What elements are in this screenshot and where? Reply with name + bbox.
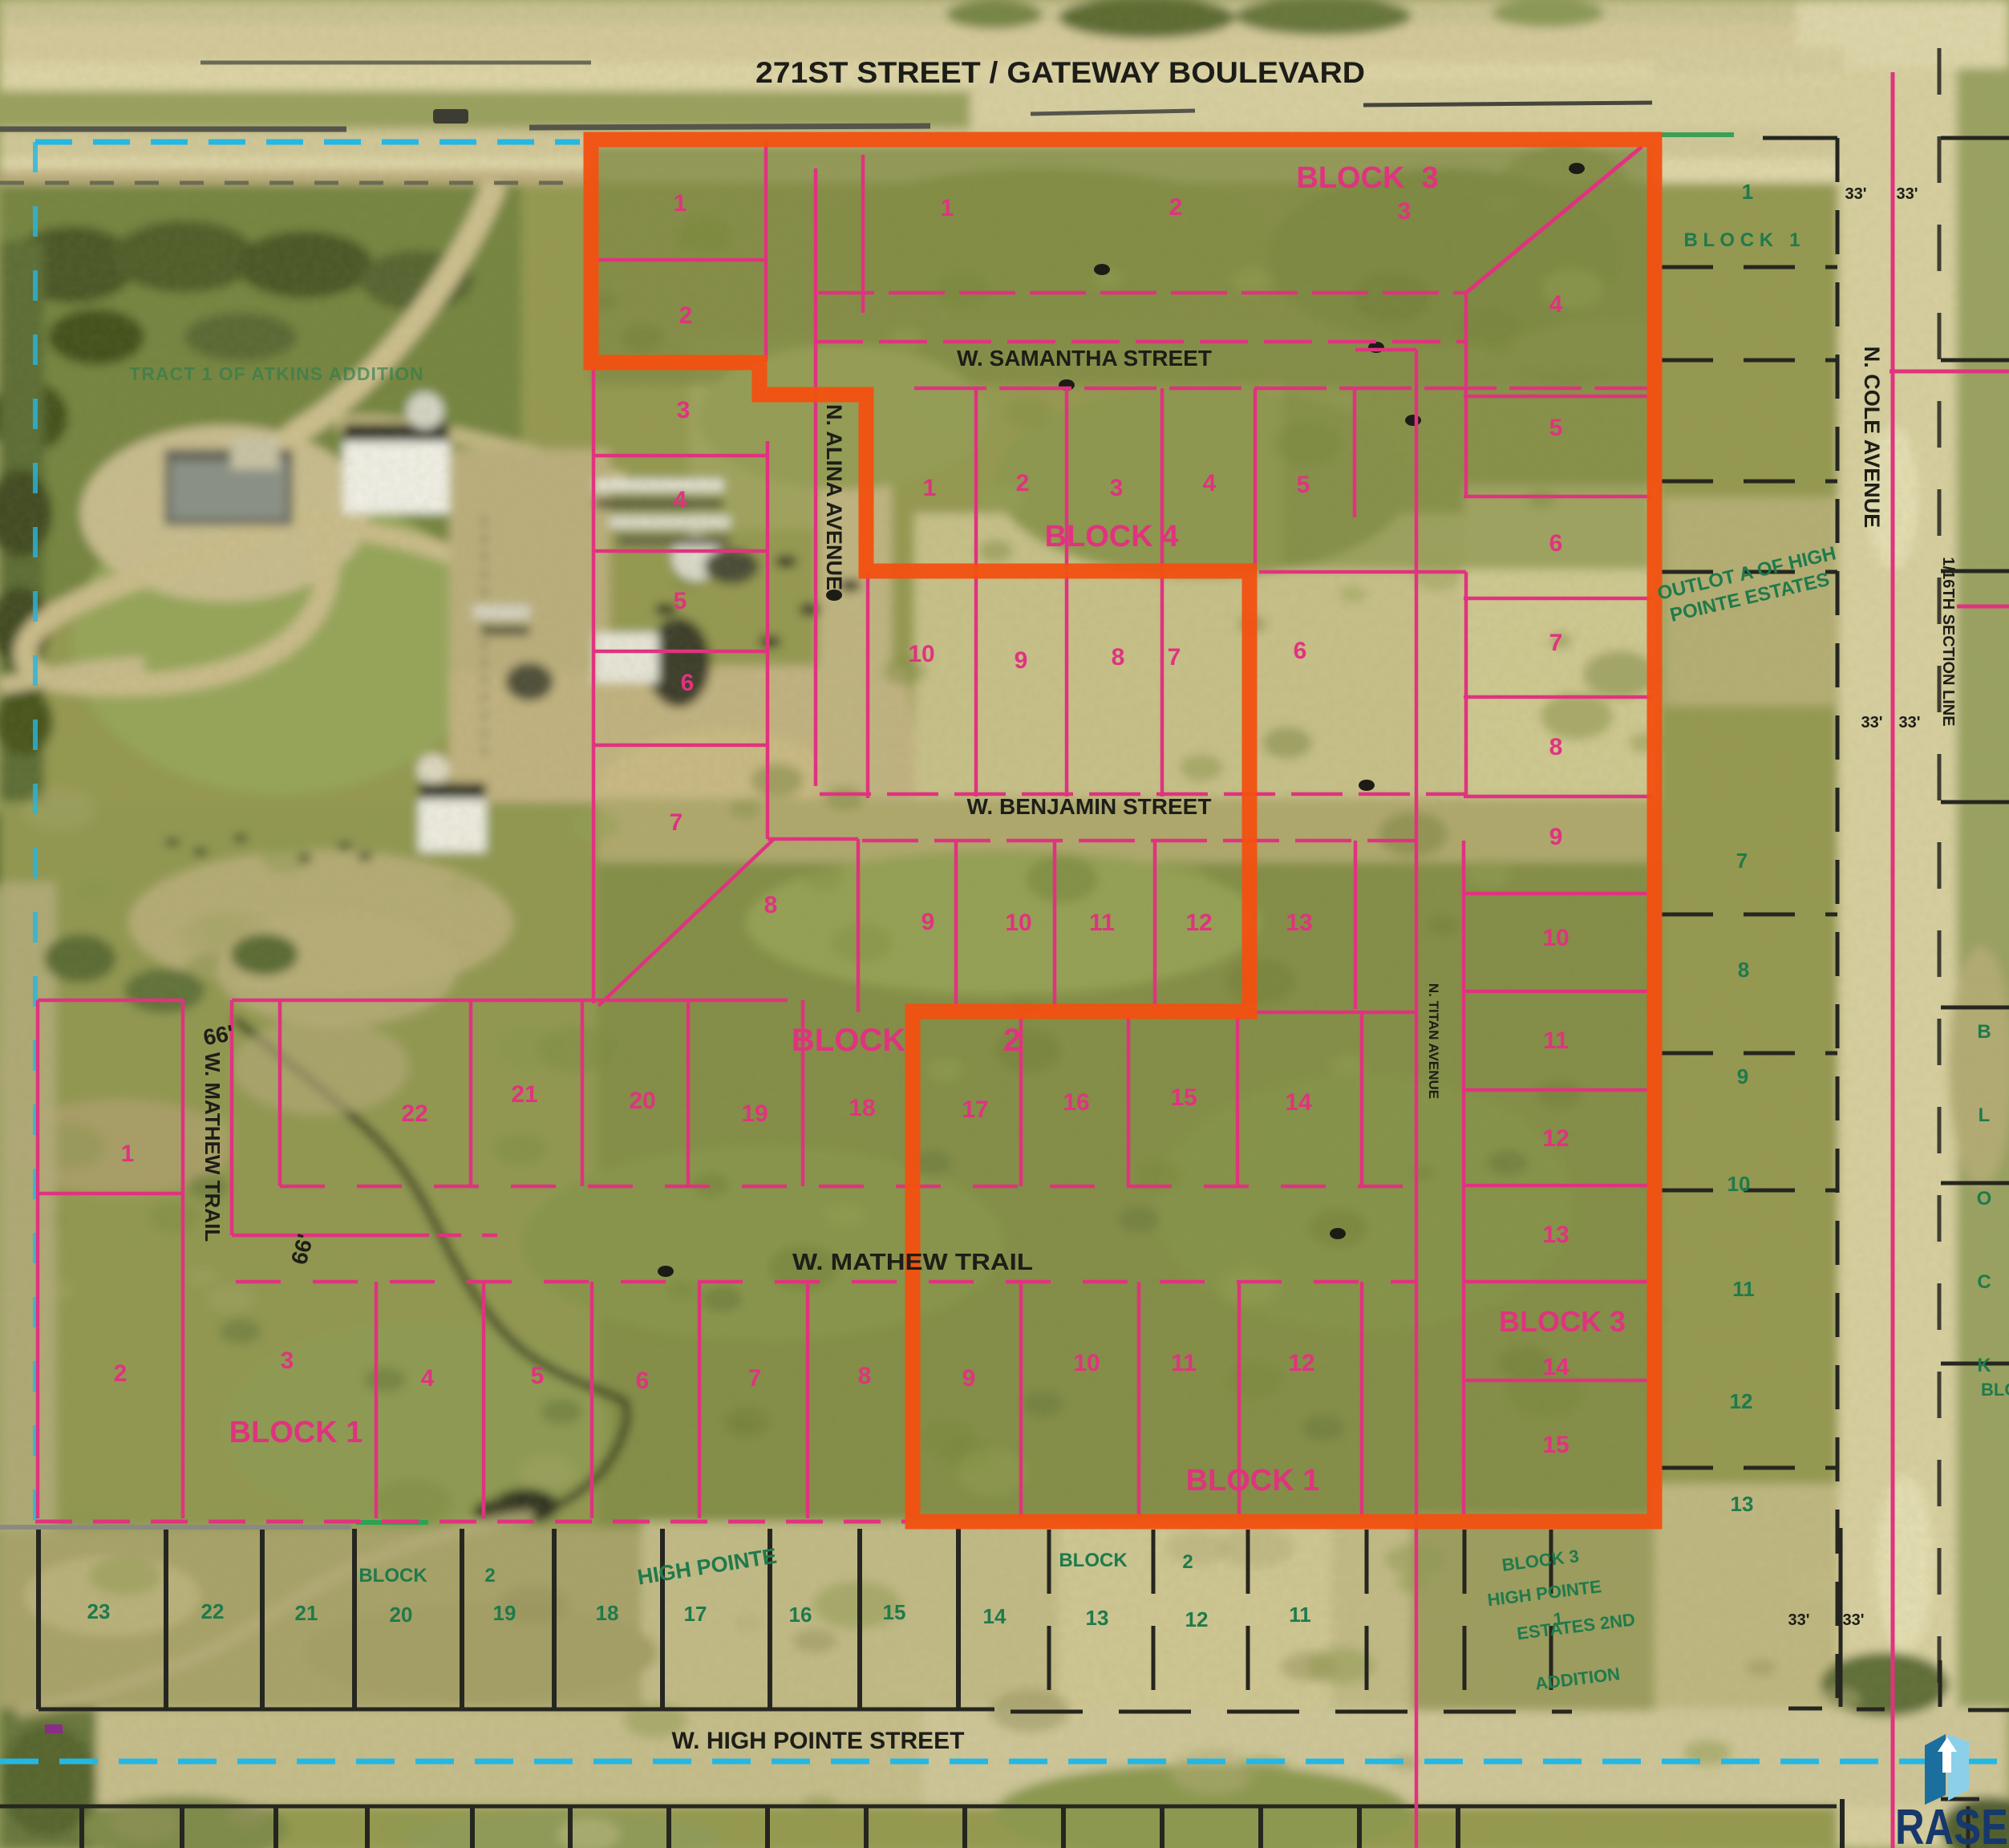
svg-text:14: 14 bbox=[983, 1604, 1007, 1628]
svg-text:22: 22 bbox=[201, 1599, 225, 1623]
svg-text:33': 33' bbox=[1896, 185, 1918, 203]
svg-text:7: 7 bbox=[1549, 630, 1563, 656]
svg-text:10: 10 bbox=[1727, 1172, 1751, 1196]
svg-text:BLOCK: BLOCK bbox=[358, 1565, 427, 1587]
svg-text:N. TITAN AVENUE: N. TITAN AVENUE bbox=[1426, 983, 1441, 1099]
svg-text:2: 2 bbox=[114, 1360, 128, 1387]
svg-text:11: 11 bbox=[1289, 1603, 1311, 1627]
svg-text:2: 2 bbox=[1169, 194, 1183, 221]
svg-text:B: B bbox=[1977, 1021, 1991, 1043]
svg-text:1: 1 bbox=[121, 1141, 135, 1167]
svg-text:O: O bbox=[1977, 1188, 1992, 1210]
svg-text:4: 4 bbox=[421, 1365, 435, 1392]
svg-text:BLOCK 3: BLOCK 3 bbox=[1296, 161, 1438, 195]
svg-text:7: 7 bbox=[1736, 849, 1748, 873]
svg-text:15: 15 bbox=[1170, 1084, 1197, 1111]
svg-text:12: 12 bbox=[1288, 1350, 1314, 1376]
svg-text:8: 8 bbox=[764, 892, 778, 918]
svg-text:11: 11 bbox=[1543, 1027, 1569, 1054]
svg-text:2: 2 bbox=[679, 302, 693, 329]
svg-text:3: 3 bbox=[677, 397, 691, 423]
svg-text:13: 13 bbox=[1542, 1222, 1569, 1248]
svg-text:271ST STREET / GATEWAY BOULEVA: 271ST STREET / GATEWAY BOULEVARD bbox=[755, 56, 1365, 89]
svg-text:BLOCK: BLOCK bbox=[1059, 1550, 1128, 1571]
svg-text:N. COLE AVENUE: N. COLE AVENUE bbox=[1860, 346, 1884, 529]
svg-text:W. SAMANTHA STREET: W. SAMANTHA STREET bbox=[957, 346, 1212, 371]
svg-text:33': 33' bbox=[1788, 1611, 1809, 1629]
svg-text:2: 2 bbox=[1016, 470, 1030, 496]
svg-text:16: 16 bbox=[789, 1603, 812, 1627]
svg-text:14: 14 bbox=[1542, 1354, 1570, 1380]
svg-text:13: 13 bbox=[1086, 1606, 1109, 1630]
svg-text:5: 5 bbox=[531, 1363, 545, 1389]
svg-text:4: 4 bbox=[1203, 470, 1217, 496]
svg-text:12: 12 bbox=[1542, 1125, 1569, 1152]
svg-text:5: 5 bbox=[674, 588, 687, 614]
svg-text:BLOCK 4: BLOCK 4 bbox=[1045, 520, 1179, 553]
svg-text:3: 3 bbox=[1398, 198, 1412, 225]
svg-text:B L O C K 1: B L O C K 1 bbox=[1684, 229, 1800, 251]
svg-text:14: 14 bbox=[1285, 1089, 1312, 1116]
svg-text:N. ALINA AVENUE: N. ALINA AVENUE bbox=[822, 404, 846, 590]
svg-text:17: 17 bbox=[684, 1602, 707, 1626]
svg-text:12: 12 bbox=[1730, 1389, 1753, 1413]
svg-text:3: 3 bbox=[281, 1347, 294, 1374]
svg-text:7: 7 bbox=[670, 809, 683, 836]
svg-text:18: 18 bbox=[596, 1601, 619, 1625]
svg-text:13: 13 bbox=[1731, 1492, 1754, 1516]
svg-text:BLOCK 1: BLOCK 1 bbox=[1186, 1464, 1320, 1497]
svg-text:2: 2 bbox=[1182, 1551, 1193, 1573]
svg-text:9: 9 bbox=[921, 909, 935, 935]
svg-text:W. MATHEW TRAIL: W. MATHEW TRAIL bbox=[200, 1052, 225, 1242]
svg-text:7: 7 bbox=[1168, 644, 1181, 671]
svg-text:18: 18 bbox=[849, 1095, 875, 1121]
svg-text:15: 15 bbox=[883, 1600, 906, 1624]
svg-text:10: 10 bbox=[1005, 910, 1031, 936]
svg-text:33': 33' bbox=[1842, 1611, 1864, 1629]
svg-text:17: 17 bbox=[962, 1096, 988, 1123]
svg-text:10: 10 bbox=[908, 641, 934, 667]
svg-text:5: 5 bbox=[1549, 415, 1563, 441]
svg-text:8: 8 bbox=[1112, 644, 1125, 671]
svg-text:6: 6 bbox=[1294, 638, 1307, 664]
svg-text:11: 11 bbox=[1089, 910, 1115, 936]
svg-text:1/16TH SECTION LINE: 1/16TH SECTION LINE bbox=[1939, 557, 1957, 726]
svg-text:8: 8 bbox=[1549, 734, 1563, 760]
svg-text:6: 6 bbox=[681, 670, 695, 696]
svg-text:12: 12 bbox=[1185, 910, 1212, 936]
svg-text:6: 6 bbox=[1549, 530, 1563, 557]
svg-text:2: 2 bbox=[1003, 1023, 1021, 1058]
svg-text:W. MATHEW TRAIL: W. MATHEW TRAIL bbox=[792, 1250, 1033, 1275]
svg-text:7: 7 bbox=[748, 1365, 762, 1392]
svg-text:BLOCK 1: BLOCK 1 bbox=[229, 1416, 363, 1449]
svg-text:10: 10 bbox=[1542, 925, 1569, 951]
svg-text:BLOCK: BLOCK bbox=[792, 1023, 905, 1058]
svg-text:K: K bbox=[1977, 1355, 1991, 1376]
svg-text:16: 16 bbox=[1063, 1089, 1089, 1116]
svg-text:15: 15 bbox=[1542, 1432, 1569, 1458]
svg-text:1: 1 bbox=[941, 195, 954, 221]
svg-text:8: 8 bbox=[1738, 958, 1749, 982]
svg-text:3: 3 bbox=[1110, 475, 1124, 501]
svg-text:BLOCK: BLOCK bbox=[1981, 1380, 2009, 1400]
svg-text:TRACT 1 OF ATKINS ADDITION: TRACT 1 OF ATKINS ADDITION bbox=[129, 363, 424, 384]
svg-text:9: 9 bbox=[1737, 1064, 1748, 1088]
svg-text:C: C bbox=[1977, 1271, 1991, 1293]
svg-text:1: 1 bbox=[1742, 180, 1753, 204]
svg-text:13: 13 bbox=[1286, 910, 1312, 936]
svg-text:33': 33' bbox=[1898, 714, 1920, 731]
svg-text:11: 11 bbox=[1171, 1350, 1197, 1376]
svg-text:10: 10 bbox=[1073, 1350, 1100, 1376]
svg-text:4: 4 bbox=[674, 487, 687, 513]
svg-text:23: 23 bbox=[87, 1599, 111, 1623]
svg-text:8: 8 bbox=[858, 1363, 872, 1389]
svg-text:33': 33' bbox=[1861, 714, 1882, 731]
svg-text:5: 5 bbox=[1297, 472, 1310, 498]
svg-text:66': 66' bbox=[201, 1020, 236, 1050]
svg-text:9: 9 bbox=[962, 1365, 976, 1392]
svg-text:19: 19 bbox=[493, 1601, 516, 1625]
svg-text:12: 12 bbox=[1185, 1607, 1209, 1631]
svg-text:BLOCK 3: BLOCK 3 bbox=[1499, 1305, 1626, 1338]
svg-text:20: 20 bbox=[390, 1603, 413, 1627]
svg-text:1: 1 bbox=[923, 475, 937, 501]
svg-text:1: 1 bbox=[674, 190, 687, 217]
svg-text:W. BENJAMIN STREET: W. BENJAMIN STREET bbox=[967, 794, 1212, 819]
svg-text:22: 22 bbox=[401, 1100, 427, 1127]
svg-text:11: 11 bbox=[1732, 1277, 1755, 1301]
svg-text:RASE: RASE bbox=[1895, 1800, 2008, 1848]
svg-text:20: 20 bbox=[629, 1088, 655, 1114]
svg-text:21: 21 bbox=[511, 1081, 537, 1108]
svg-text:4: 4 bbox=[1549, 291, 1563, 318]
svg-text:2: 2 bbox=[484, 1565, 495, 1587]
svg-text:9: 9 bbox=[1549, 824, 1563, 850]
svg-text:W. HIGH POINTE STREET: W. HIGH POINTE STREET bbox=[671, 1728, 964, 1754]
svg-text:9: 9 bbox=[1015, 647, 1028, 674]
svg-text:21: 21 bbox=[295, 1601, 318, 1625]
svg-text:L: L bbox=[1979, 1104, 1991, 1126]
svg-text:19: 19 bbox=[741, 1100, 768, 1127]
svg-text:6: 6 bbox=[636, 1368, 650, 1394]
svg-text:33': 33' bbox=[1845, 185, 1866, 203]
